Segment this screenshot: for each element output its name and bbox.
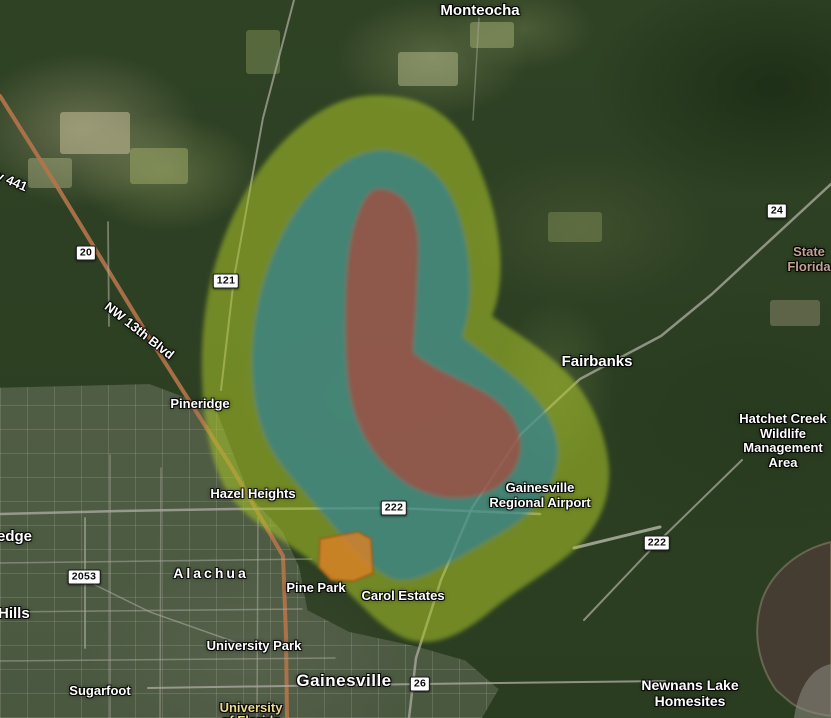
place-label-pineridge: Pineridge [170,397,229,412]
label-line: State [787,245,830,260]
label-line: Gainesville [489,481,590,496]
label-line: Florida [787,260,830,275]
place-label-alachua: Alachua [173,566,248,582]
place-label-fairbanks: Fairbanks [562,354,633,371]
satellite-map[interactable]: 2012124222222205326 MonteochaHighway 441… [0,0,831,718]
label-line: Area [739,456,826,471]
place-label-pine-park: Pine Park [286,581,345,596]
place-label-carol-estates: Carol Estates [361,589,444,604]
place-label-highway-441: Highway 441 [0,151,29,195]
place-label-monteocha: Monteocha [440,3,519,20]
place-label-university-park: University Park [207,639,302,654]
label-line: Homesites [641,694,738,710]
place-labels-layer: MonteochaHighway 441NW 13th BlvdFairbank… [0,0,831,718]
place-label-edge: edge [0,529,32,546]
place-label-nw-13th-blvd: NW 13th Blvd [102,300,177,363]
place-label-hatchet-creek-wma: Hatchet CreekWildlifeManagementArea [739,412,826,470]
label-line: Hatchet Creek [739,412,826,427]
label-line: Wildlife [739,427,826,442]
place-label-gainesville-regional-airport: GainesvilleRegional Airport [489,481,590,510]
place-label-hazel-heights: Hazel Heights [210,487,295,502]
place-label-newnans-lake-homesites: Newnans LakeHomesites [641,678,738,709]
label-line: Regional Airport [489,496,590,511]
place-label-hills: Hills [0,606,30,623]
place-label-state-florida: StateFlorida [787,245,830,274]
label-line: Newnans Lake [641,678,738,694]
place-label-university-poi-line2: of Florida [221,714,280,718]
place-label-sugarfoot: Sugarfoot [69,684,130,699]
place-label-gainesville: Gainesville [296,671,391,690]
label-line: Management [739,441,826,456]
